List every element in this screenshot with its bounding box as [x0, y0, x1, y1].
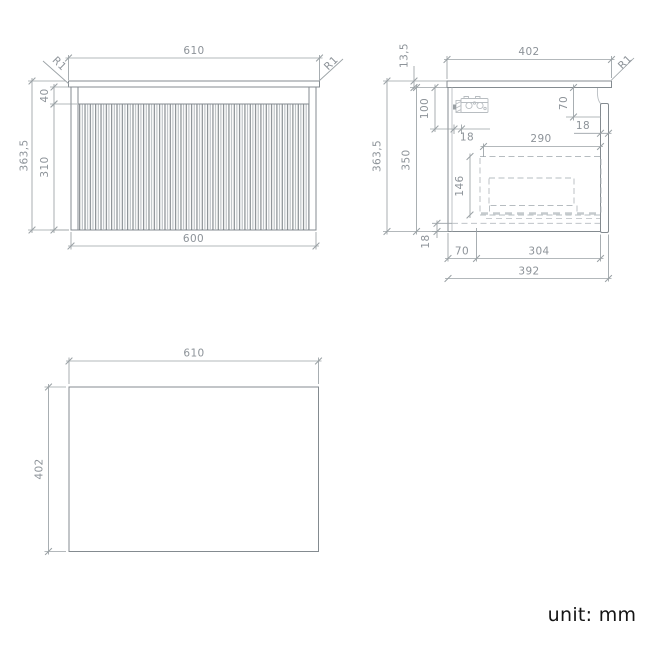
dim-text: 290	[530, 133, 551, 145]
dim-text: 13,5	[399, 43, 411, 68]
dim-text: 100	[419, 98, 431, 119]
dim-text: 610	[183, 348, 204, 360]
plan-countertop-outline	[69, 387, 319, 552]
dim-text: 40	[39, 88, 51, 102]
side-countertop-outline	[447, 81, 612, 88]
dim-text: 363,5	[19, 139, 31, 171]
dim-text: 18	[460, 132, 474, 144]
front-countertop-outline	[69, 81, 320, 87]
dim-text: 392	[518, 266, 539, 278]
dim-text: 402	[518, 46, 539, 58]
dim-text: 18	[420, 234, 432, 248]
dim-text: 18	[576, 120, 590, 132]
dim-text: 304	[528, 246, 549, 258]
dim-text: 70	[455, 246, 469, 258]
dim-text: 350	[401, 149, 413, 170]
dim-text: 402	[34, 458, 46, 479]
dim-text: 610	[183, 45, 204, 57]
technical-drawing-page: 610 R1 R1 363,5 40 310	[0, 0, 650, 650]
dim-text: 310	[39, 156, 51, 177]
unit-note: unit: mm	[548, 604, 637, 626]
dim-text: 363,5	[372, 140, 384, 172]
dim-text: 70	[558, 96, 570, 110]
dim-text: 146	[454, 175, 466, 196]
drawing-svg: 610 R1 R1 363,5 40 310	[0, 0, 650, 650]
dim-text: 600	[183, 233, 204, 245]
front-fluted-door-texture	[79, 105, 309, 231]
